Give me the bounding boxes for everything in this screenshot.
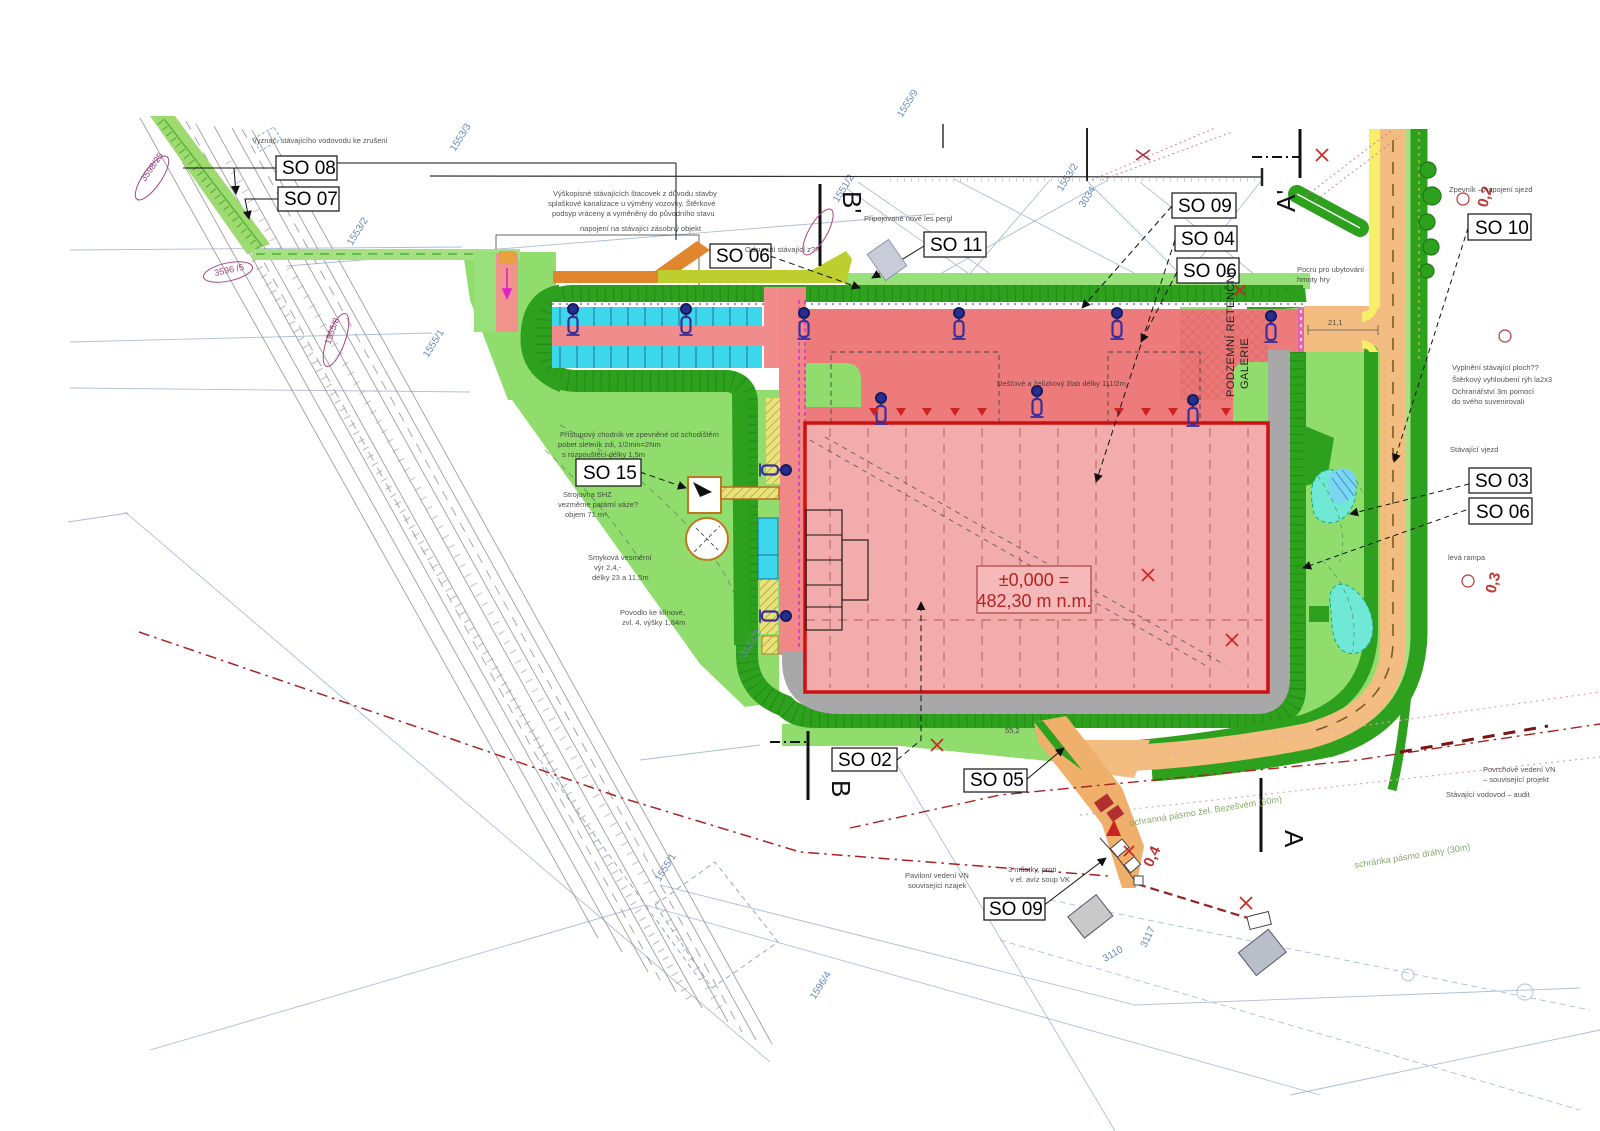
- svg-text:Povrchové vedení VN: Povrchové vedení VN: [1483, 765, 1556, 774]
- svg-text:Pocru pro ubytování: Pocru pro ubytování: [1297, 265, 1365, 274]
- svg-text:délky 23 a 11,5m: délky 23 a 11,5m: [592, 573, 649, 582]
- svg-text:SO 09: SO 09: [1178, 196, 1232, 217]
- svg-text:SO 08: SO 08: [282, 158, 336, 179]
- svg-text:objem 71 m³: objem 71 m³: [565, 510, 607, 519]
- svg-text:Povodlo ke klínové,: Povodlo ke klínové,: [620, 608, 685, 617]
- svg-text:21,1: 21,1: [1328, 318, 1343, 327]
- svg-text:podsyp vráceny a vyměněny do p: podsyp vráceny a vyměněny do původního s…: [552, 209, 715, 218]
- svg-text:SO 04: SO 04: [1181, 229, 1235, 250]
- svg-text:Výškopisné stávajících štacove: Výškopisné stávajících štacovek z důvodu…: [553, 189, 717, 198]
- svg-text:SO 02: SO 02: [838, 750, 892, 771]
- svg-text:Štěrkový vyhloubení rýh la2x3: Štěrkový vyhloubení rýh la2x3: [1452, 375, 1552, 384]
- svg-text:SO 03: SO 03: [1475, 471, 1529, 492]
- svg-text:Pavilonï vedení VN: Pavilonï vedení VN: [905, 871, 969, 880]
- svg-text:Vyplnění stávající ploch??: Vyplnění stávající ploch??: [1452, 363, 1539, 372]
- svg-text:Stávající vjezd: Stávající vjezd: [1450, 445, 1498, 454]
- svg-text:A': A': [1271, 190, 1301, 212]
- svg-text:Ochranářství 3m pomocí: Ochranářství 3m pomocí: [1452, 387, 1535, 396]
- svg-text:SO 10: SO 10: [1475, 218, 1529, 239]
- svg-text:GALERIE: GALERIE: [1239, 338, 1251, 389]
- svg-text:levá rampa: levá rampa: [1448, 553, 1486, 562]
- svg-text:SO 06: SO 06: [1476, 502, 1530, 523]
- svg-text:do svého suvenirovali: do svého suvenirovali: [1452, 397, 1524, 406]
- svg-text:±0,000 =: ±0,000 =: [999, 570, 1069, 590]
- svg-text:hmoty hry: hmoty hry: [1297, 275, 1330, 284]
- svg-text:Odsunutí stávající z??: Odsunutí stávající z??: [745, 245, 819, 254]
- svg-text:Přístupový chodník ve zpevněné: Přístupový chodník ve zpevněné od schodi…: [560, 430, 719, 439]
- svg-text:PODZEMNÍ RETENČNÍ: PODZEMNÍ RETENČNÍ: [1224, 271, 1237, 397]
- svg-text:B: B: [826, 780, 856, 797]
- svg-text:výr 2,4,-: výr 2,4,-: [594, 563, 622, 572]
- svg-text:Strojovna SHZ: Strojovna SHZ: [563, 490, 612, 499]
- svg-text:SO 09: SO 09: [989, 899, 1043, 920]
- svg-text:Dešťové a želízkový žlab délky: Dešťové a želízkový žlab délky 111/2m: [997, 379, 1126, 388]
- svg-text:SO 11: SO 11: [930, 235, 982, 256]
- svg-text:zvl. 4, výšky 1,84m: zvl. 4, výšky 1,84m: [622, 618, 685, 627]
- svg-text:s rozpouštěcí délky 1,5m: s rozpouštěcí délky 1,5m: [562, 450, 645, 459]
- svg-text:55,2: 55,2: [1005, 726, 1020, 735]
- svg-text:SO 15: SO 15: [583, 463, 637, 484]
- svg-text:Zpevník – napojení sjezd: Zpevník – napojení sjezd: [1449, 185, 1532, 194]
- svg-text:3 můstky, proti: 3 můstky, proti: [1008, 865, 1057, 874]
- svg-text:SO 05: SO 05: [970, 770, 1024, 791]
- svg-text:vezměme patární váze?: vezměme patární váze?: [558, 500, 638, 509]
- svg-text:A: A: [1279, 830, 1309, 848]
- svg-text:napojení na stávající zásobný: napojení na stávající zásobný objekt: [580, 224, 702, 233]
- svg-text:482,30 m n.m.: 482,30 m n.m.: [976, 591, 1091, 611]
- svg-text:SO 07: SO 07: [284, 189, 338, 210]
- svg-text:pobet slevník zdi, 1/2min=2Nm: pobet slevník zdi, 1/2min=2Nm: [558, 440, 661, 449]
- svg-text:splaškové kanalizace u výměny: splaškové kanalizace u výměny vozovky. Š…: [548, 199, 715, 208]
- svg-text:Připojované nové les pergl: Připojované nové les pergl: [864, 214, 953, 223]
- svg-text:Smyková vesměrní: Smyková vesměrní: [588, 553, 653, 562]
- svg-text:souvisejíci nzajek: souvisejíci nzajek: [908, 881, 967, 890]
- svg-text:v el. avíz soup VK: v el. avíz soup VK: [1010, 875, 1070, 884]
- svg-text:– související projekt: – související projekt: [1483, 775, 1550, 784]
- svg-text:Stávající vodovod – audit: Stávající vodovod – audit: [1446, 790, 1531, 799]
